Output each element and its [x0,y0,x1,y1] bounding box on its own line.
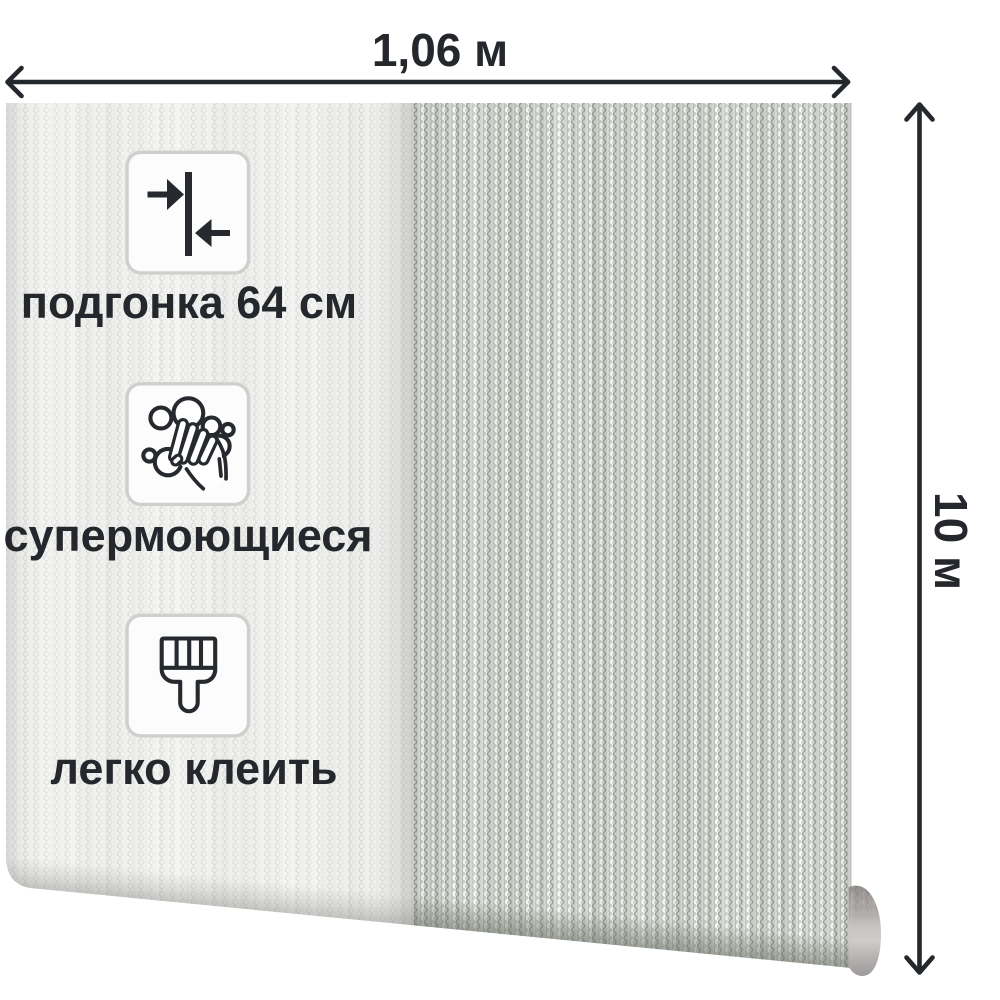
svg-text:10 м: 10 м [925,492,977,590]
svg-text:подгонка 64 см: подгонка 64 см [21,277,357,328]
svg-text:супермоющиеся: супермоющиеся [3,510,372,561]
svg-text:1,06 м: 1,06 м [372,24,508,76]
svg-text:легко клеить: легко клеить [50,743,337,794]
